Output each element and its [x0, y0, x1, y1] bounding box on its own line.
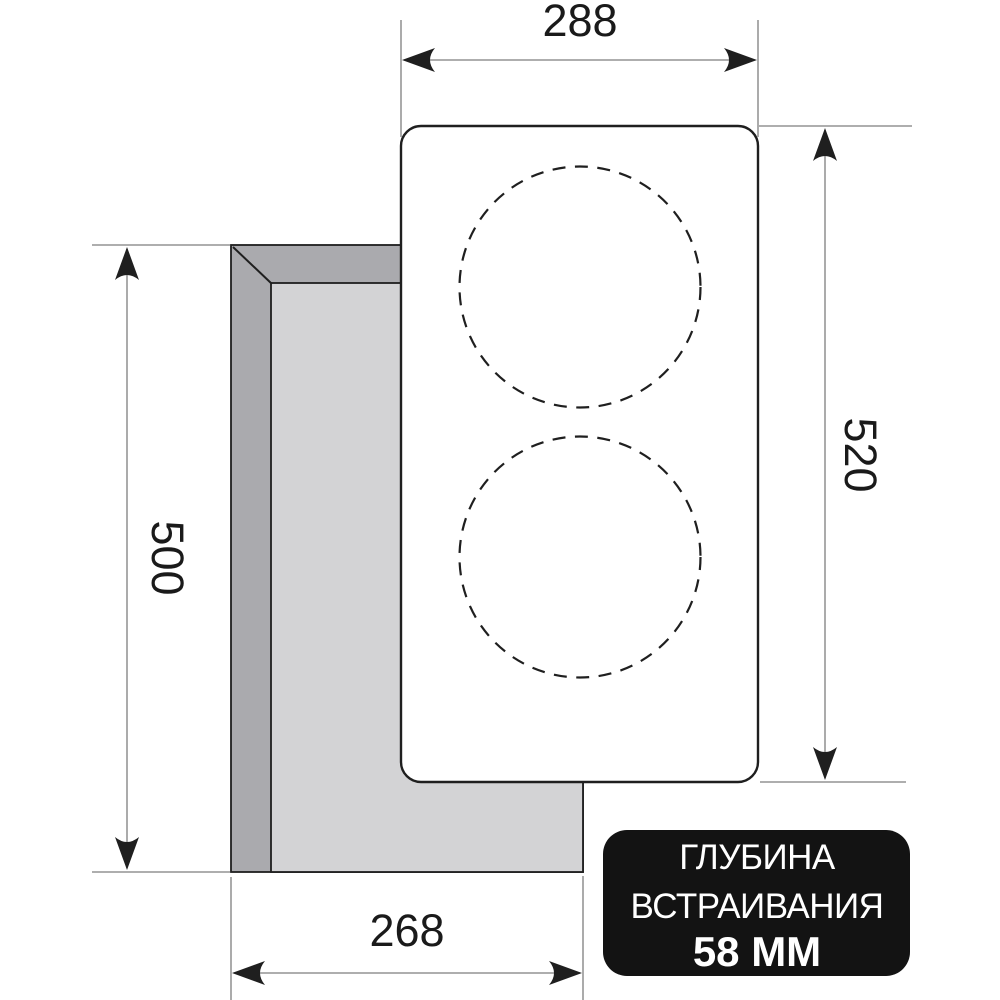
badge-line2: ВСТРАИВАНИЯ	[631, 887, 884, 926]
badge-line1: ГЛУБИНА	[679, 838, 836, 877]
dimension-panel-height: 520	[759, 126, 912, 782]
dimension-value-500: 500	[142, 520, 193, 595]
depth-badge: ГЛУБИНА ВСТРАИВАНИЯ 58 ММ	[603, 830, 910, 976]
hob-glass-panel	[401, 126, 758, 782]
dimension-value-288: 288	[542, 0, 617, 46]
dimension-value-520: 520	[835, 417, 886, 492]
dimension-value-268: 268	[369, 905, 444, 956]
dimension-cutout-height: 500	[92, 245, 230, 872]
hob-dimension-diagram: 288 520 500 268	[0, 0, 1000, 1000]
dimension-panel-width: 288	[401, 0, 758, 137]
diagram-canvas: 288 520 500 268	[0, 0, 1000, 1000]
hob-panel	[401, 126, 758, 782]
dimension-cutout-width: 268	[231, 876, 583, 1000]
badge-line3: 58 ММ	[693, 928, 821, 975]
